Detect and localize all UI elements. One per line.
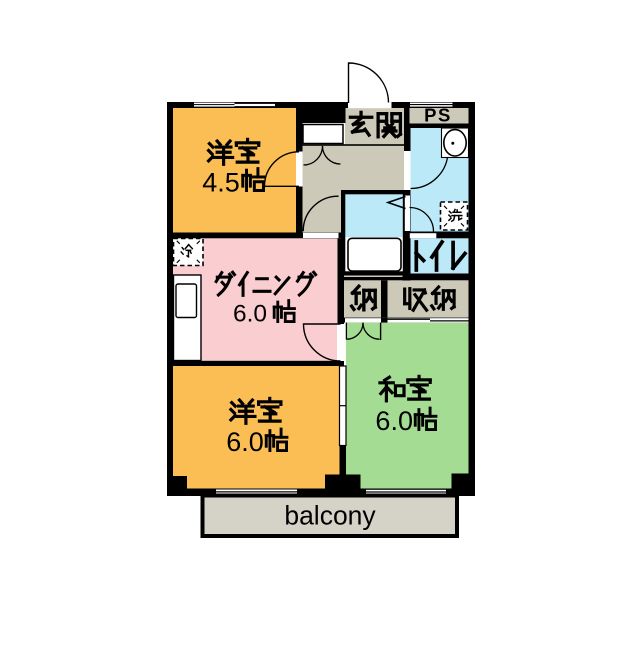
svg-text:balcony: balcony (284, 501, 376, 531)
svg-text:6.0: 6.0 (233, 301, 267, 328)
svg-text:PS: PS (424, 105, 452, 126)
svg-text:4.5: 4.5 (202, 168, 240, 198)
svg-text:6.0: 6.0 (375, 406, 413, 436)
svg-text:6.0: 6.0 (226, 427, 264, 457)
